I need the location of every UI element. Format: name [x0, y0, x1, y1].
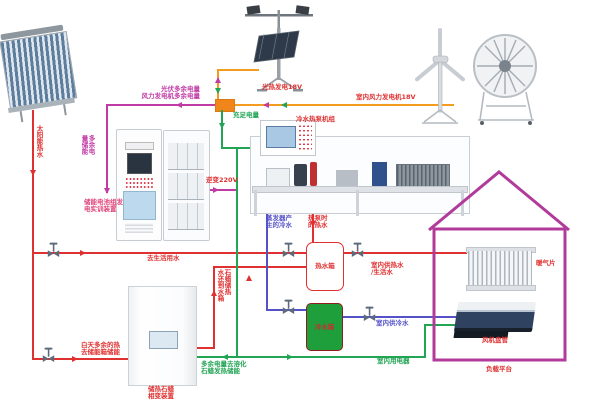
radiator-fins — [468, 251, 532, 285]
label-indoor-hot-water: 室内供热水 /生活水 — [371, 262, 404, 276]
arrow-left-icon — [176, 102, 182, 108]
cabinet-nameplate — [125, 142, 154, 150]
label-evaporator-cold-water: 蒸发器产 生的冷水 — [266, 215, 292, 229]
label-surplus-melt-paraffin: 多余电量去溶化 石蜡发热储能 — [201, 361, 247, 375]
bench-component — [266, 168, 290, 188]
pipe-paraffin-return-up — [213, 267, 215, 348]
label-indoor-appliances: 室内用电器 — [377, 358, 410, 365]
arrow-down-icon — [219, 123, 225, 129]
cabinet-vent — [125, 223, 153, 233]
control-and-battery-cabinets — [116, 127, 208, 240]
system-diagram: 热水箱 冷水箱 太阳能热水 光伏多余电量 风力发电机多余电量 多余电 量储能 储… — [0, 0, 600, 419]
collector-leg — [63, 104, 67, 115]
label-surplus-to-storage: 多余电 量储能 — [80, 135, 94, 161]
valve-icon — [47, 241, 60, 258]
label-load-platform: 负载平台 — [486, 366, 512, 373]
paraffin-phase-change-device — [128, 286, 197, 386]
bench-buttons — [298, 124, 312, 150]
bench-component — [336, 170, 358, 186]
vacuum-tubes — [0, 31, 77, 109]
arrow-left-icon — [281, 102, 287, 108]
indicator-lights — [125, 177, 153, 188]
valve-icon — [351, 241, 364, 258]
pipe-solar-down — [32, 110, 34, 359]
label-radiator: 暖气片 — [536, 260, 556, 267]
valve-icon — [363, 305, 376, 322]
arrow-down-icon — [104, 188, 110, 194]
arrow-right-icon — [72, 356, 78, 362]
radiator — [466, 246, 534, 292]
arrow-up-icon — [246, 275, 252, 281]
battery-shelf — [168, 203, 204, 230]
valve-icon — [282, 241, 295, 258]
bench-leg — [254, 190, 257, 216]
cabinet-screen — [127, 153, 152, 174]
arrow-left-icon — [263, 102, 269, 108]
label-inverter: 逆变220V — [206, 177, 238, 184]
bench-leg — [356, 190, 359, 216]
label-pv-generation: 光热发电18V — [262, 84, 302, 91]
arrow-up-icon — [215, 77, 221, 83]
control-cabinet — [116, 129, 162, 241]
label-chiller-unit: 冷水热泵机组 — [296, 116, 335, 123]
hot-water-tank: 热水箱 — [306, 242, 344, 291]
wire-surplus-horizontal — [106, 104, 217, 106]
arrow-right-icon — [213, 187, 219, 193]
cold-water-tank: 冷水箱 — [306, 303, 343, 351]
pipe-paraffin-return-to-tank — [213, 266, 308, 268]
paraffin-screen — [149, 331, 178, 349]
label-paraffin-device: 储热石蜡 相变装置 — [148, 386, 218, 400]
fan-coil-body — [454, 302, 536, 332]
arrow-right-icon — [287, 354, 293, 360]
cold-tank-label: 冷水箱 — [315, 324, 335, 331]
battery-shelf — [168, 173, 204, 200]
label-indoor-wind-generator: 室内风力发电机18V — [356, 94, 416, 101]
arrow-down-icon — [30, 170, 36, 176]
wind-turbine-and-fan — [400, 20, 550, 130]
label-sufficient-power: 充足电量 — [233, 112, 259, 119]
hot-tank-label: 热水箱 — [315, 263, 335, 270]
wire-charge-down — [221, 110, 223, 149]
red-tank — [310, 162, 317, 186]
label-heat-pump-hot-water: 热泵时 的热水 — [308, 215, 328, 229]
label-solar-hot-water: 太阳能热水 — [35, 125, 42, 163]
power-junction-box — [215, 99, 235, 112]
radiator-rail — [466, 285, 536, 291]
wire-pv-drop — [217, 69, 219, 101]
valve-icon — [42, 346, 55, 363]
bench-screen — [266, 126, 296, 148]
wire-surplus-to-battery — [106, 104, 108, 193]
label-battery-device: 储能电池组发 电实训装置 — [84, 199, 123, 213]
label-wind-surplus: 风力发电机多余电量 — [130, 93, 200, 100]
compressor — [294, 164, 307, 186]
arrow-right-icon — [80, 250, 86, 256]
battery-cabinet — [163, 130, 210, 241]
label-indoor-cold-water: 室内供冷水 — [376, 320, 409, 327]
label-to-domestic-water: 去生活用水 — [147, 255, 180, 262]
label-daytime-surplus-heat: 白天多余的热 去储能箱储能 — [81, 342, 120, 356]
solar-collector — [0, 23, 81, 125]
pv-tracker — [233, 2, 325, 94]
label-fan-coil: 风机盘管 — [482, 337, 508, 344]
collector-leg — [20, 111, 24, 122]
cabinet-panel — [123, 191, 156, 220]
arrow-down-icon — [215, 88, 221, 94]
valve-icon — [282, 298, 295, 315]
heat-exchanger — [372, 162, 387, 186]
label-paraffin-heat-return: 石蜡储热 水还到水箱 — [216, 269, 230, 307]
battery-shelf — [168, 143, 204, 170]
